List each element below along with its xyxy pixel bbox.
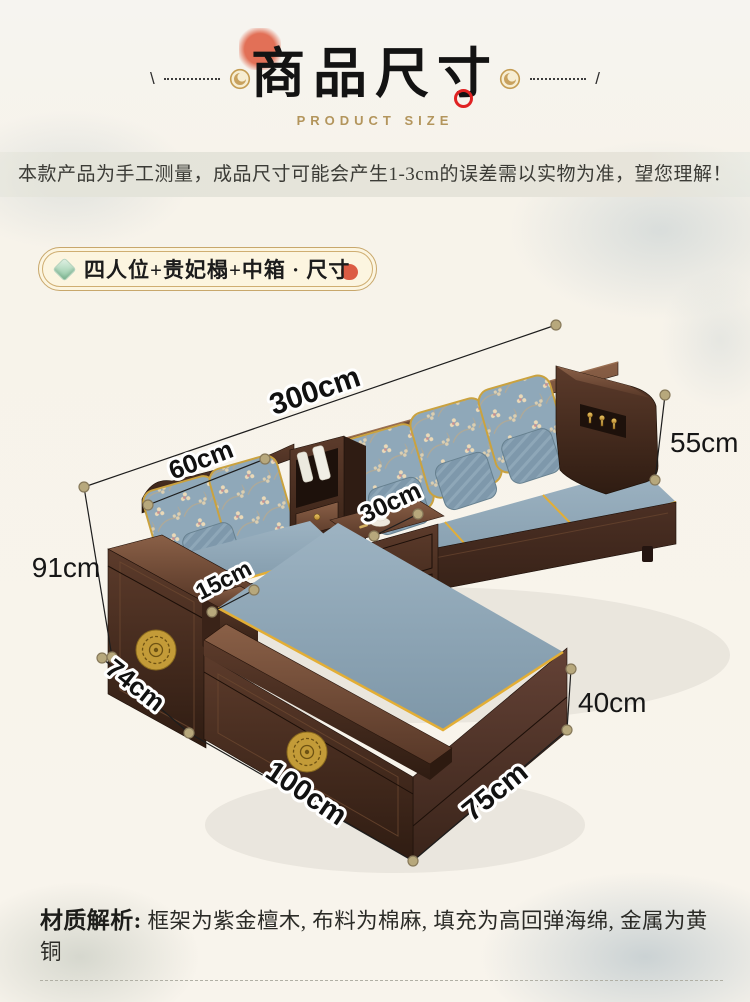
dim-back-height: 55cm xyxy=(670,427,738,458)
dotted-line xyxy=(164,78,220,80)
left-ornament: \ xyxy=(150,68,251,90)
materials-text: 材质解析: 框架为紫金檀木, 布料为棉麻, 填充为高回弹海绵, 金属为黄铜 xyxy=(40,901,723,966)
materials-heading: 材质解析: xyxy=(40,908,142,933)
product-size-page: \ 商品尺寸 / PRODUCT SIZE xyxy=(0,0,750,1002)
red-circle-icon xyxy=(454,89,473,108)
coin-icon xyxy=(229,68,251,90)
right-armrest xyxy=(556,366,658,494)
disclaimer-band: 本款产品为手工测量，成品尺寸可能会产生1-3cm的误差需以实物为准，望您理解！ xyxy=(0,152,750,197)
subtitle: PRODUCT SIZE xyxy=(0,113,750,128)
dashed-divider xyxy=(40,980,723,981)
gold-medallion xyxy=(136,630,176,670)
dotted-line xyxy=(530,78,586,80)
disclaimer-text: 本款产品为手工测量，成品尺寸可能会产生1-3cm的误差需以实物为准，望您理解！ xyxy=(0,152,750,197)
title-wrap: 商品尺寸 xyxy=(251,44,499,104)
variant-badge-label: 四人位+贵妃榻+中箱 · 尺寸 xyxy=(84,254,350,284)
coin-icon xyxy=(499,68,521,90)
dim-overall-height: 91cm xyxy=(32,552,100,583)
left-slash: \ xyxy=(150,69,155,89)
jade-diamond-icon xyxy=(52,257,76,281)
materials-section: 材质解析: 框架为紫金檀木, 布料为棉麻, 填充为高回弹海绵, 金属为黄铜 xyxy=(40,901,723,981)
sofa-dimension-diagram: 300cm 55cm 60cm 30cm 91cm 15cm 74cm 40cm… xyxy=(0,310,750,885)
variant-badge: 四人位+贵妃榻+中箱 · 尺寸 xyxy=(38,247,377,291)
right-ornament: / xyxy=(499,68,600,90)
dim-total-length: 300cm xyxy=(265,360,364,422)
dim-chaise-height: 40cm xyxy=(578,687,646,718)
right-slash: / xyxy=(595,69,600,89)
header: \ 商品尺寸 / PRODUCT SIZE xyxy=(0,0,750,112)
title-row: \ 商品尺寸 / xyxy=(0,0,750,112)
